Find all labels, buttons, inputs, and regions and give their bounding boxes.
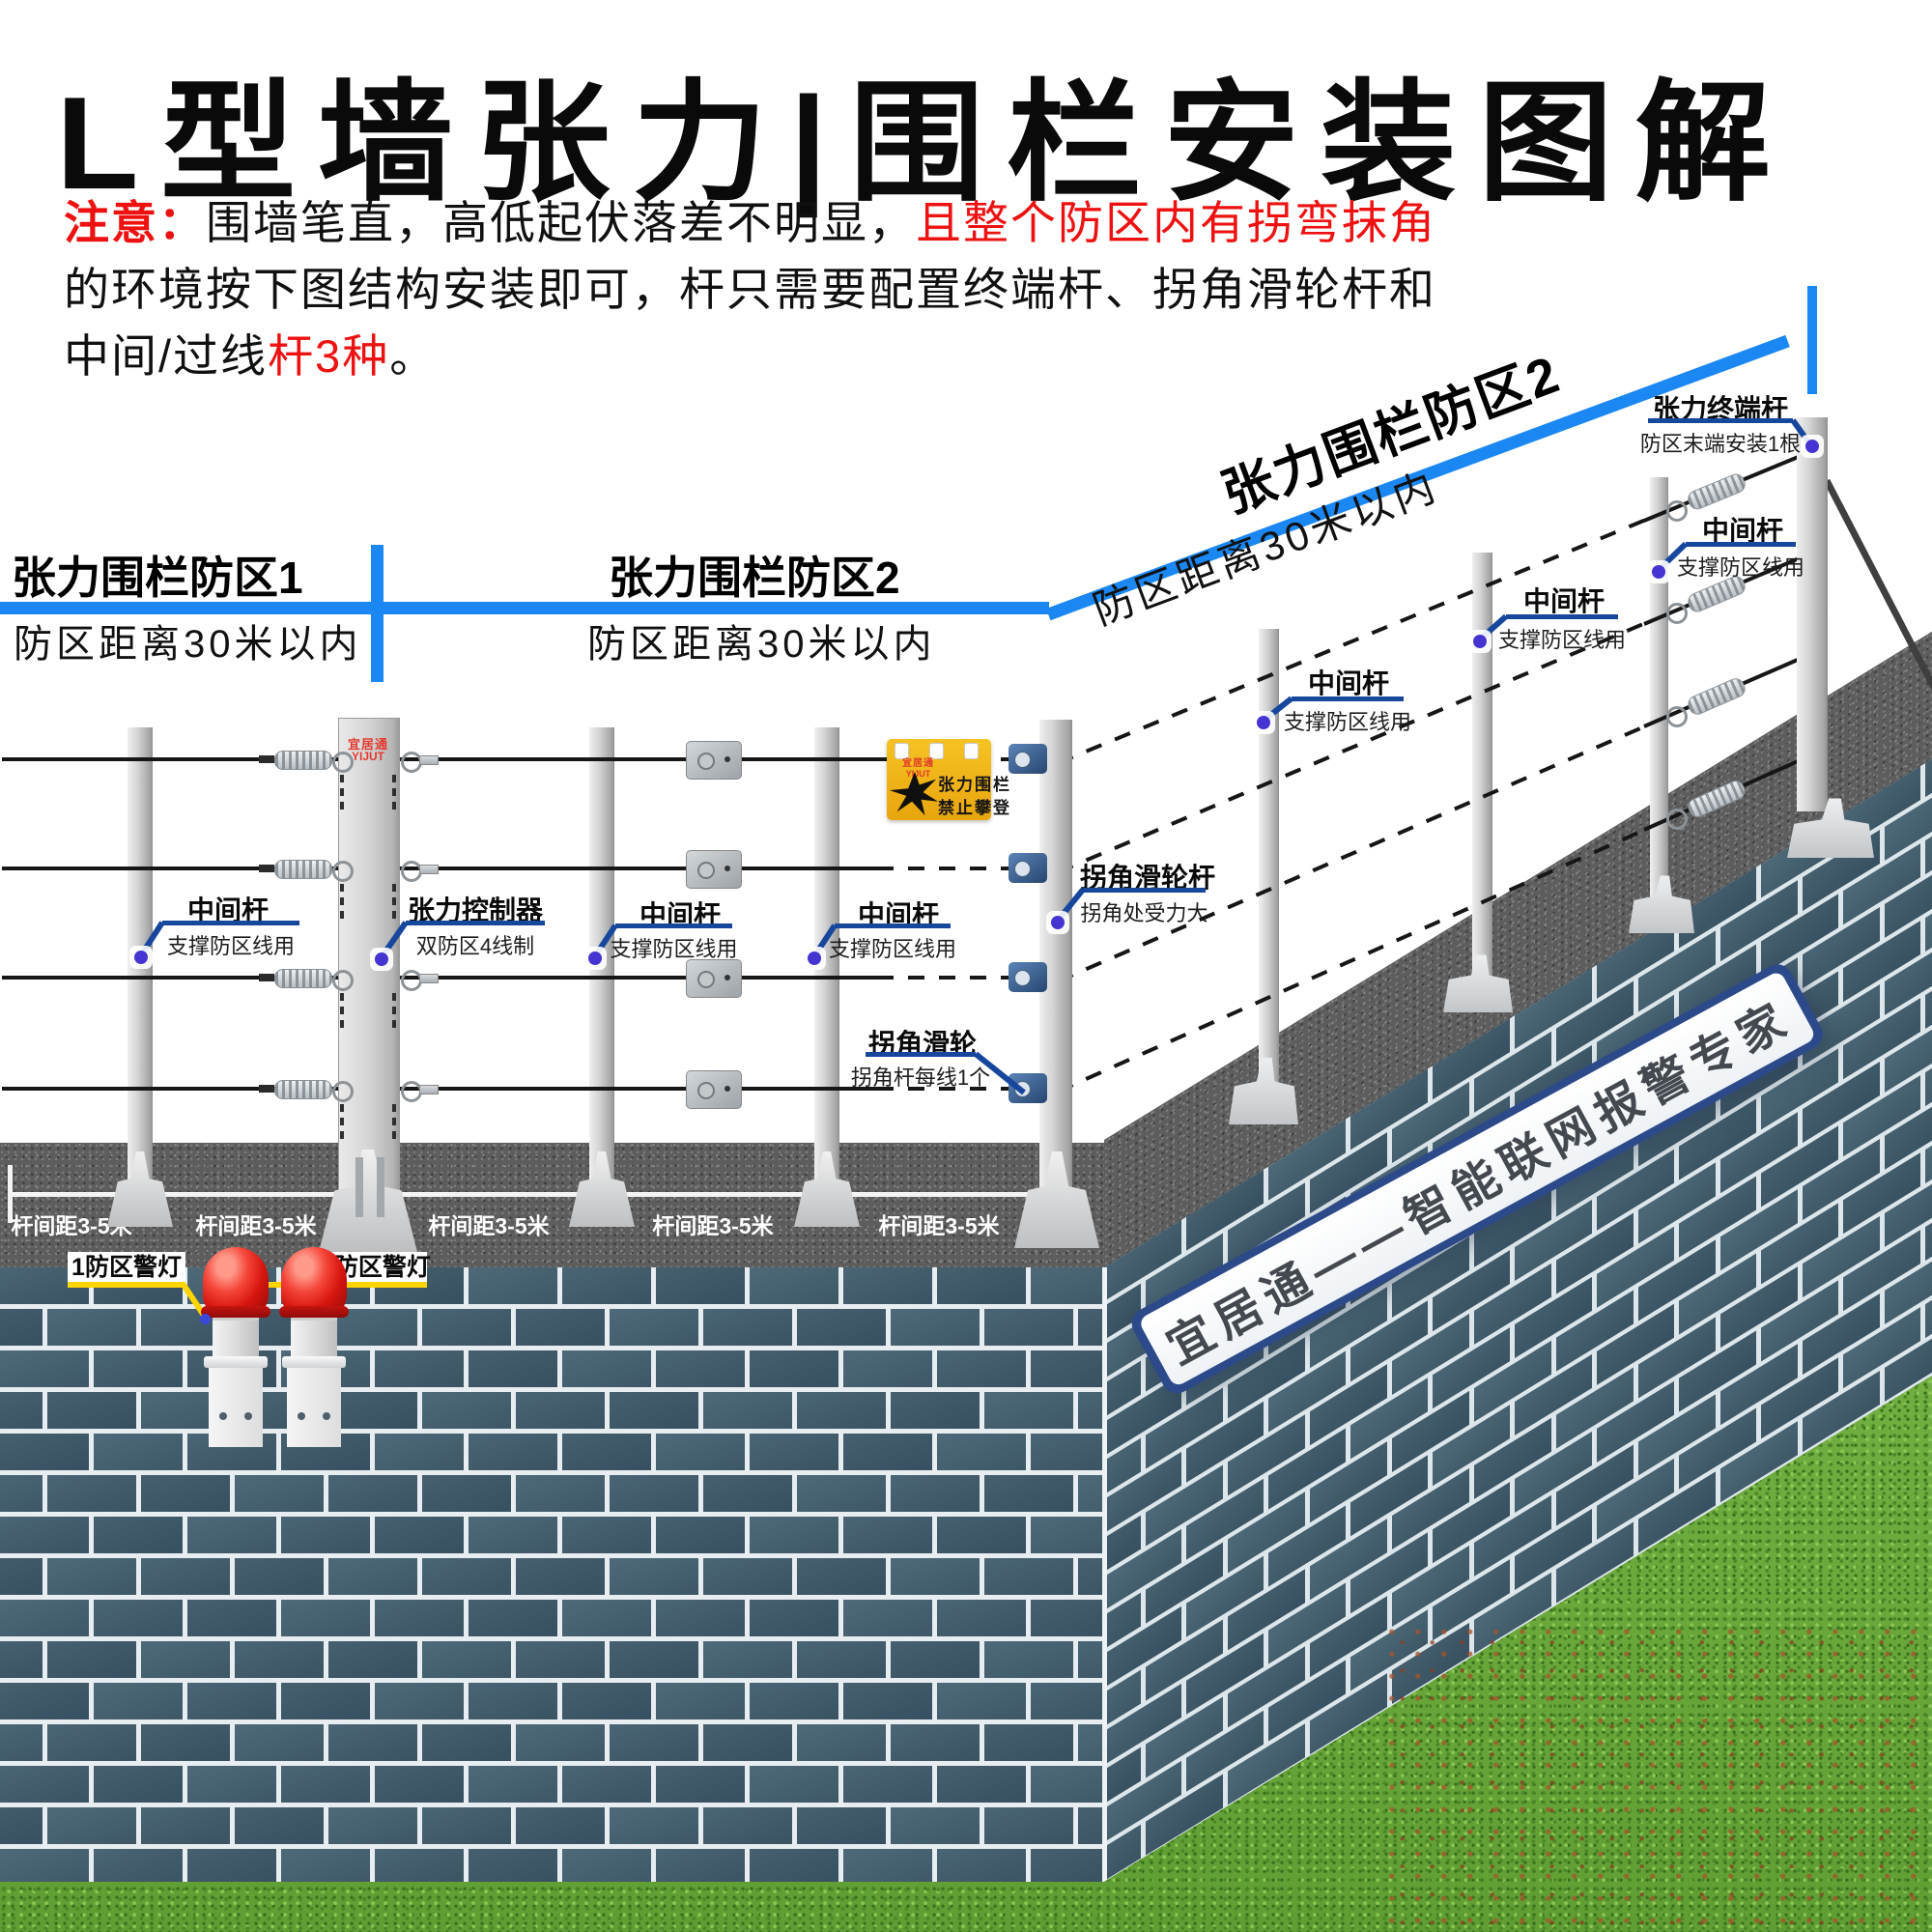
callout-underline-corner-pulley-pole [1083,888,1206,893]
brick [141,1558,230,1595]
controller-brand-badge: 宜居通 YIJUT [338,738,398,763]
controller-screw-mark [392,1007,396,1014]
callout-dot [375,952,388,966]
brick [610,1475,698,1512]
notice-paragraph: 注意：围墙笔直，高低起伏落差不明显，且整个防区内有拐弯抹角 的环境按下图结构安装… [64,189,1609,389]
brick [656,1517,745,1553]
brick [703,1392,792,1429]
brick [94,1434,183,1470]
brick [843,1517,932,1553]
fence-wire [2,867,877,870]
brick [703,1309,792,1346]
brick [422,1558,511,1595]
brick [94,1766,183,1803]
brick [516,1392,605,1429]
brick [750,1267,838,1304]
brick [797,1475,886,1512]
brick [562,1434,651,1470]
callout-dot [1473,635,1487,648]
brick [610,1724,698,1761]
controller-screw-mark [340,775,344,782]
brick [562,1683,651,1719]
brick [47,1475,136,1512]
brick [1031,1350,1109,1387]
corner-pulley-wheel-icon [1014,752,1031,768]
brick [422,1392,511,1429]
brick [843,1849,932,1886]
alarm-bracket-screw-icon [323,1412,330,1420]
brick [328,1724,417,1761]
wire-ferrule [419,755,439,765]
brick [187,1600,276,1636]
zone-end-tick [1807,286,1817,394]
brick [328,1392,417,1429]
wire-ferrule [259,974,274,981]
callout-dot [1652,565,1665,579]
sign-hook-slot-icon [964,743,979,759]
sign-brand-cn: 宜居通 [902,759,934,769]
brick [422,1724,511,1761]
callout-underline-mid-pole-3 [835,923,951,928]
brick [469,1766,557,1803]
brick [94,1517,183,1553]
brick [750,1600,838,1636]
brick [47,1807,136,1844]
alarm-light-flange [204,1356,268,1368]
warning-sign: 宜居通 YIJUT 张力围栏 禁止攀登 [887,739,991,820]
brick [281,1683,370,1719]
callout-underline-slope-mid-pole-3 [1686,542,1796,547]
callout-dot [808,952,821,965]
slope-wire-dashed [1057,622,1644,874]
brick [328,1807,417,1844]
brick [891,1309,980,1346]
brick [47,1309,136,1346]
brick-wall-front [0,1267,1109,1888]
notice-line3-red: 杆3种 [268,330,389,382]
brick [656,1849,745,1886]
brick [516,1309,605,1346]
controller-screw-mark [340,788,344,796]
controller-brand-en: YIJUT [338,751,398,763]
corner-pulley-wheel-icon [1014,970,1031,986]
brick [1031,1600,1109,1636]
brick [562,1517,651,1553]
alarm-light-body [213,1318,259,1361]
brick [328,1558,417,1595]
alarm-underline [68,1282,185,1288]
tension-spring [274,1080,332,1099]
callout-underline-corner-pulley [866,1052,976,1057]
callout-underline-slope-mid-pole-1 [1292,696,1404,701]
controller-screw-mark [392,1131,396,1139]
brick [656,1434,745,1470]
brick [797,1392,886,1429]
brick [1031,1267,1109,1304]
brick [750,1849,838,1886]
brick [375,1683,464,1719]
grass-leaf-litter [1381,1623,1932,1932]
brick [141,1641,230,1678]
brick [469,1600,557,1636]
brick [1031,1683,1109,1719]
pole-spacing-label: 杆间距3-5米 [626,1207,800,1240]
brick [328,1641,417,1678]
brick [610,1641,698,1678]
callout-subtitle-corner-pulley: 拐角杆每线1个 [727,1061,1114,1092]
brick [1031,1766,1109,1803]
brick [610,1807,698,1844]
controller-screw-mark [340,1104,344,1112]
sign-hook-slot-icon [895,743,909,759]
brick [469,1517,557,1553]
pole-spacing-label: 杆间距3-5米 [169,1207,343,1240]
wire-ferrule [259,1085,274,1093]
junction-box-screw-icon [697,1082,715,1099]
brick [0,1309,43,1346]
brick [703,1807,792,1844]
notice-line-1: 注意：围墙笔直，高低起伏落差不明显，且整个防区内有拐弯抹角 [64,189,1609,256]
brick [1031,1434,1109,1470]
fence-wire [2,757,877,761]
callout-dot [1805,440,1819,453]
sign-text-line2: 禁止攀登 [938,794,988,818]
brick [937,1267,1026,1304]
brick [141,1724,230,1761]
brick [610,1558,698,1595]
tension-spring [274,969,332,988]
alarm-light-ring [201,1306,270,1318]
controller-screw-mark [392,993,396,1001]
brick [984,1724,1073,1761]
brick [375,1434,464,1470]
notice-line-3: 中间/过线杆3种。 [64,323,1609,389]
controller-screw-mark [340,1007,344,1014]
brick [47,1392,136,1429]
callout-underline-mid-pole-1 [162,921,299,925]
brick [656,1600,745,1636]
brick [94,1849,183,1886]
notice-line2-text: 的环境按下图结构安装即可，杆只需要配置终端杆、拐角滑轮杆和 [64,264,1436,315]
brick [984,1475,1073,1512]
controller-screw-mark [392,775,396,782]
brick [375,1766,464,1803]
brick [141,1807,230,1844]
zone-divider-tick [371,545,384,682]
brick [750,1683,838,1719]
callout-subtitle-slope-mid-pole-1: 支撑防区线用 [1154,705,1541,736]
brick [1031,1517,1109,1553]
wire-ferrule [419,974,439,983]
controller-base-slot [377,1157,384,1217]
eye-hook-icon [332,970,354,991]
alarm-light-flange [282,1356,346,1368]
controller-screw-mark [392,1104,396,1112]
callout-title-slope-mid-pole-1: 中间杆 [1155,663,1542,701]
brick [94,1683,183,1719]
brick [0,1392,43,1429]
brick [891,1807,980,1844]
brick [937,1600,1026,1636]
brick [235,1641,324,1678]
brick [47,1558,136,1595]
wire-ferrule [419,865,439,874]
alarm-bracket-screw-icon [219,1412,227,1420]
brick [797,1724,886,1761]
brick [375,1600,464,1636]
brick [797,1641,886,1678]
brick [141,1475,230,1512]
alarm-light-ring [279,1306,349,1318]
tension-spring [274,860,332,879]
brick [937,1434,1026,1470]
alarm-light-body [291,1318,337,1361]
brick [0,1683,89,1719]
eye-hook-icon [332,861,354,882]
callout-subtitle-slope-mid-pole-3: 支撑防区线用 [1548,551,1932,582]
brick [187,1683,276,1719]
brick [469,1434,557,1470]
brick [562,1350,651,1387]
callout-underline-terminal-pole [1648,418,1793,423]
brick [843,1683,932,1719]
brick [562,1267,651,1304]
tension-spring [1685,676,1747,718]
alarm-label-zone1: 1防区警灯 [68,1252,185,1283]
brick [0,1641,43,1678]
brick [984,1309,1073,1346]
brick [703,1475,792,1512]
brick [1031,1849,1109,1886]
brick [562,1600,651,1636]
brick [843,1434,932,1470]
controller-screw-mark [340,1131,344,1139]
brick [516,1641,605,1678]
junction-box-screw-icon [697,971,715,988]
alarm-anchor-dot [200,1314,211,1324]
controller-screw-mark [340,993,344,1001]
brick [0,1558,43,1595]
brick [187,1766,276,1803]
brick [610,1309,698,1346]
brick [610,1392,698,1429]
zone2-subtitle: 防区距离30米以内 [587,612,936,668]
brick [843,1267,932,1304]
terminal-pole [1797,417,1828,811]
brick [891,1392,980,1429]
tension-spring [274,751,332,770]
brick [0,1475,43,1512]
brick [797,1309,886,1346]
brick [422,1309,511,1346]
brick [750,1350,838,1387]
pole-spacing-label: 杆间距3-5米 [852,1207,1026,1240]
tension-spring [1685,471,1747,512]
brick [187,1517,276,1553]
callout-dot [134,951,148,964]
sign-text-line1: 张力围栏 [938,771,988,795]
callout-underline-slope-mid-pole-2 [1506,614,1618,619]
callout-subtitle-slope-mid-pole-2: 支撑防区线用 [1369,623,1755,654]
brick [422,1475,511,1512]
brick [891,1724,980,1761]
brick [562,1849,651,1886]
wire-ferrule [259,865,274,872]
pole-spacing-label: 杆间距3-5米 [402,1207,576,1240]
brick [937,1517,1026,1553]
brick [0,1517,89,1553]
junction-box-dot-icon [724,756,730,762]
brick [47,1724,136,1761]
alarm-bracket-screw-icon [244,1412,252,1420]
brick [937,1766,1026,1803]
brick [937,1849,1026,1886]
brick [94,1600,183,1636]
brick [235,1807,324,1844]
brick [937,1350,1026,1387]
notice-line-2: 的环境按下图结构安装即可，杆只需要配置终端杆、拐角滑轮杆和 [64,256,1609,323]
brick [469,1267,557,1304]
brick [750,1766,838,1803]
brick [235,1558,324,1595]
brick [375,1350,464,1387]
controller-screw-mark [340,1118,344,1125]
brick [0,1724,43,1761]
notice-line1-black: 围墙笔直，高低起伏落差不明显， [206,197,916,248]
alarm-light-bracket [287,1368,341,1447]
brick [562,1766,651,1803]
notice-line3-tail: 。 [389,330,437,382]
callout-subtitle-mid-pole-3: 支撑防区线用 [699,932,1086,963]
brick [281,1517,370,1553]
brick [0,1807,43,1844]
brick [235,1724,324,1761]
brick [891,1641,980,1678]
brick [0,1350,89,1387]
brick [375,1849,464,1886]
junction-box-dot-icon [724,975,730,980]
brick [656,1267,745,1304]
junction-box-screw-icon [697,753,715,770]
brick [750,1517,838,1553]
wall-corner-seam [1102,1267,1107,1886]
brick [843,1350,932,1387]
junction-box-screw-icon [697,862,715,879]
brick [281,1766,370,1803]
brick [984,1641,1073,1678]
brick [516,1558,605,1595]
brick [843,1766,932,1803]
controller-screw-mark [340,802,344,810]
brick [937,1683,1026,1719]
callout-dot [588,952,602,965]
brick [891,1475,980,1512]
controller-screw-mark [392,1118,396,1125]
notice-line1-red: 且整个防区内有拐弯抹角 [916,197,1436,248]
brick [469,1849,557,1886]
brick [797,1558,886,1595]
fence-wire [2,976,877,980]
infographic-canvas: L型墙张力|围栏安装图解 注意：围墙笔直，高低起伏落差不明显，且整个防区内有拐弯… [0,0,1932,1932]
controller-screw-mark [340,1020,344,1028]
brick [281,1849,370,1886]
brick [235,1475,324,1512]
callout-dot [1257,716,1270,729]
wire-ferrule [259,755,274,763]
eagle-icon [887,770,939,818]
brick [422,1807,511,1844]
controller-screw-mark [392,788,396,796]
brick [797,1807,886,1844]
callout-dot [1051,916,1065,929]
controller-screw-mark [392,1020,396,1028]
brick [422,1641,511,1678]
brick [656,1350,745,1387]
eye-hook-icon [1666,706,1688,727]
brick [281,1600,370,1636]
brick [187,1849,276,1886]
brick [516,1724,605,1761]
brick [703,1558,792,1595]
zone1-subtitle: 防区距离30米以内 [14,612,362,668]
brick [516,1475,605,1512]
callout-subtitle-corner-pulley-pole: 拐角处受力大 [952,896,1338,927]
brick [891,1558,980,1595]
brick [656,1683,745,1719]
brick [0,1600,89,1636]
brick [0,1434,89,1470]
zone2-title: 张力围栏防区2 [609,543,900,607]
brick [843,1600,932,1636]
brick [375,1517,464,1553]
controller-screw-mark [392,802,396,810]
brick [0,1849,89,1886]
brick [750,1434,838,1470]
brick [984,1558,1073,1595]
eye-hook-icon [332,1081,354,1102]
brick [703,1724,792,1761]
alarm-bracket-screw-icon [298,1412,305,1420]
notice-line3-black: 中间/过线 [64,330,268,382]
brick [516,1807,605,1844]
brick [984,1392,1073,1429]
junction-box-dot-icon [724,866,730,871]
callout-subtitle-terminal-pole: 防区末端安装1根 [1527,427,1914,458]
brick [94,1350,183,1387]
brick [469,1350,557,1387]
wire-ferrule [419,1085,439,1094]
controller-base-slot [355,1157,363,1217]
brick [328,1475,417,1512]
notice-prefix: 注意： [64,197,206,248]
alarm-light-bracket [209,1368,263,1447]
zone1-title: 张力围栏防区1 [12,543,303,607]
brick [656,1766,745,1803]
sign-hook-slot-icon [929,743,944,759]
callout-title-slope-mid-pole-2: 中间杆 [1371,581,1757,619]
brick [0,1766,89,1803]
brick [703,1641,792,1678]
brick [47,1641,136,1678]
brick [469,1683,557,1719]
brick [984,1807,1073,1844]
